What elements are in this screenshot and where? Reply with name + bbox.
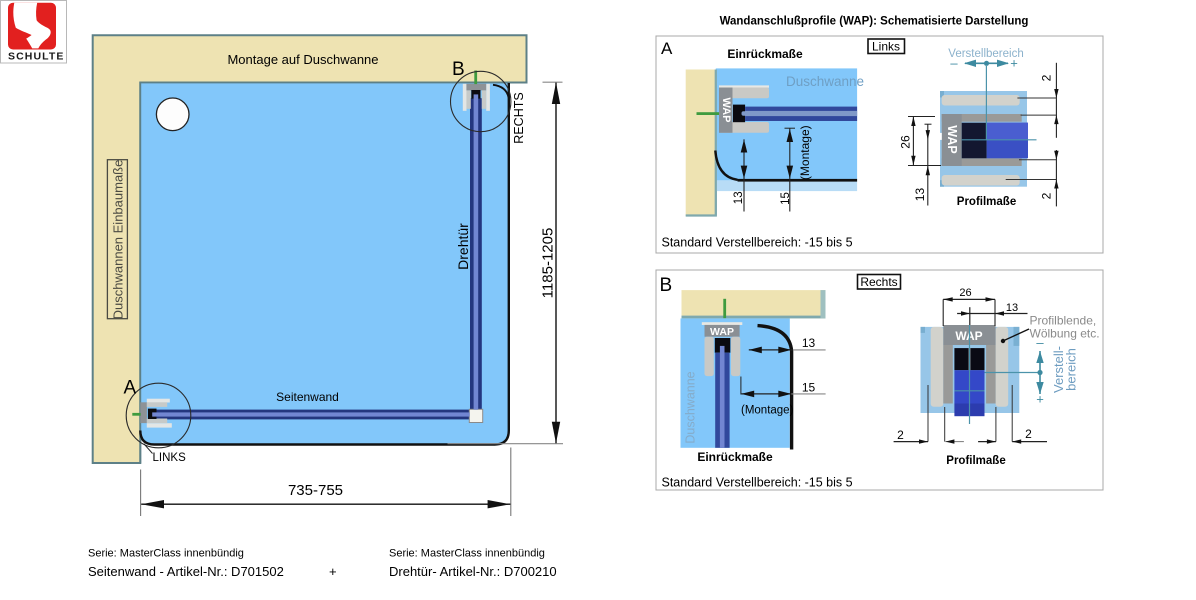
svg-text:WAP: WAP [710, 326, 734, 338]
svg-text:WAP: WAP [945, 125, 959, 153]
svg-text:A: A [661, 39, 673, 58]
svg-text:13: 13 [1006, 302, 1018, 314]
svg-text:(Montage): (Montage) [798, 125, 812, 180]
svg-text:Duschwanne: Duschwanne [786, 74, 864, 89]
svg-text:SCHULTE: SCHULTE [8, 51, 65, 63]
svg-text:Profilmaße: Profilmaße [946, 455, 1005, 467]
svg-text:–: – [950, 56, 958, 71]
svg-text:15: 15 [802, 381, 816, 395]
svg-text:(Montage): (Montage) [741, 405, 794, 417]
svg-text:–: – [1036, 335, 1044, 350]
svg-text:Seitenwand - Artikel-Nr.: D701: Seitenwand - Artikel-Nr.: D701502 [88, 564, 284, 579]
svg-text:Seitenwand: Seitenwand [276, 390, 339, 404]
svg-text:Rechts: Rechts [860, 275, 897, 289]
svg-text:Einrückmaße: Einrückmaße [727, 47, 803, 61]
svg-text:+: + [1036, 392, 1044, 407]
svg-text:Wandanschlußprofile (WAP): Sch: Wandanschlußprofile (WAP): Schematisiert… [720, 16, 1029, 28]
svg-text:+: + [329, 564, 337, 579]
svg-text:A: A [124, 378, 137, 399]
svg-text:B: B [660, 275, 673, 296]
svg-text:Einrückmaße: Einrückmaße [697, 450, 773, 464]
svg-text:Duschwanne: Duschwanne [684, 371, 698, 443]
svg-text:2: 2 [1040, 74, 1054, 81]
svg-text:2: 2 [1040, 192, 1054, 199]
svg-text:Montage auf Duschwanne: Montage auf Duschwanne [227, 52, 378, 67]
svg-text:Drehtür- Artikel-Nr.: D700210: Drehtür- Artikel-Nr.: D700210 [389, 564, 557, 579]
svg-text:Serie: MasterClass innenbündig: Serie: MasterClass innenbündig [88, 548, 244, 560]
svg-text:13: 13 [802, 336, 816, 350]
svg-text:13: 13 [733, 191, 745, 204]
svg-text:LINKS: LINKS [153, 452, 187, 464]
svg-text:15: 15 [780, 192, 792, 205]
svg-text:Links: Links [872, 40, 900, 54]
svg-text:+: + [1010, 56, 1018, 71]
svg-text:735-755: 735-755 [288, 482, 343, 499]
svg-text:Serie: MasterClass innenbündig: Serie: MasterClass innenbündig [389, 548, 545, 560]
svg-text:RECHTS: RECHTS [512, 92, 526, 143]
svg-text:26: 26 [959, 287, 971, 299]
svg-text:1185-1205: 1185-1205 [540, 228, 557, 299]
svg-text:Profilmaße: Profilmaße [957, 196, 1016, 208]
svg-text:2: 2 [1025, 427, 1032, 441]
svg-text:B: B [452, 59, 465, 80]
svg-text:bereich: bereich [1064, 348, 1079, 391]
svg-text:Standard Verstellbereich: -15: Standard Verstellbereich: -15 bis 5 [662, 236, 853, 250]
svg-text:2: 2 [897, 428, 904, 442]
svg-text:Profilblende,: Profilblende, [1030, 314, 1097, 328]
svg-text:Drehtür: Drehtür [455, 223, 471, 270]
svg-text:Duschwannen Einbaumaße: Duschwannen Einbaumaße [111, 160, 126, 320]
svg-text:26: 26 [899, 135, 913, 149]
svg-text:13: 13 [913, 188, 927, 202]
svg-text:Standard Verstellbereich: -15: Standard Verstellbereich: -15 bis 5 [662, 476, 853, 490]
svg-text:WAP: WAP [720, 97, 732, 122]
